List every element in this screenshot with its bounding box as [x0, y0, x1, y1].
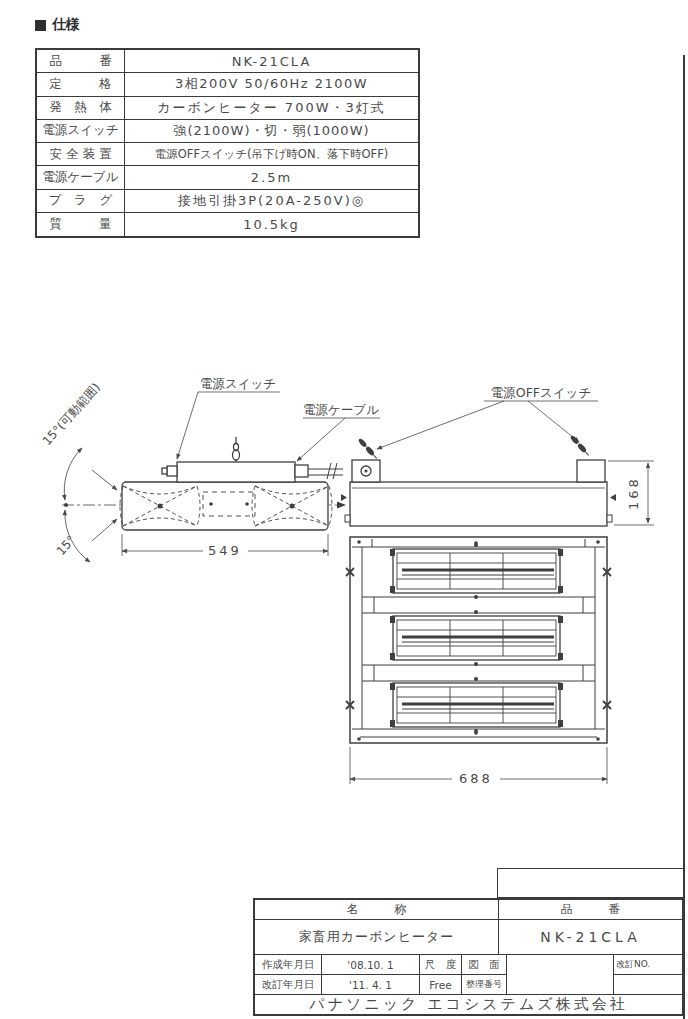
dimension-688: 688 — [350, 747, 607, 786]
dimension-688-text: 688 — [459, 771, 493, 786]
created-date-label: 作成年月日 — [255, 955, 322, 975]
drawing-no-label-top: 図 面 — [462, 955, 507, 975]
product-name: 家畜用カーボンヒーター — [255, 920, 499, 955]
tilt-range-top-label: 15°(可動範囲) — [40, 380, 103, 448]
dimension-168: 168 — [608, 461, 654, 525]
drawing-no-value — [507, 955, 614, 995]
scale-label: 尺 度 — [420, 955, 462, 975]
dimension-549: 549 — [122, 534, 328, 558]
created-date-value: '08.10. 1 — [322, 955, 420, 975]
company-name: パナソニック エコシステムズ株式会社 — [255, 995, 682, 1014]
off-switch-hook-left — [357, 437, 378, 460]
power-off-switch-callout: 電源OFFスイッチ — [377, 385, 598, 449]
hook-block-right — [577, 460, 605, 482]
front-view — [341, 434, 616, 526]
drawing-no-label-bottom: 整理番号 — [462, 975, 507, 995]
title-block: 名 称 品 番 家畜用カーボンヒーター NK-21CLA 作成年月日 '08.1… — [253, 898, 684, 1016]
revision-no-value — [614, 975, 682, 995]
hanger-hook-icon — [233, 437, 240, 462]
power-cable-callout: 電源ケーブル — [297, 402, 380, 461]
dimension-549-text: 549 — [208, 543, 242, 558]
control-box — [177, 462, 295, 482]
part-number-value: NK-21CLA — [499, 920, 682, 955]
name-header: 名 称 — [255, 900, 499, 920]
lamp-assembly — [390, 677, 563, 733]
off-switch-hook-right — [569, 434, 590, 457]
tilt-range-bottom-label: 15° — [54, 533, 79, 558]
heater-body-side — [122, 482, 328, 530]
revised-date-value: '11. 4. 1 — [322, 975, 420, 995]
scale-value: Free — [420, 975, 462, 995]
title-block-empty-box — [497, 868, 684, 898]
lamp-assemblies — [390, 543, 563, 733]
revision-no-label: 改訂NO. — [614, 955, 682, 975]
power-switch-label: 電源スイッチ — [200, 376, 276, 391]
lamp-assembly — [390, 543, 563, 599]
dimension-168-text: 168 — [626, 476, 641, 510]
power-off-switch-label: 電源OFFスイッチ — [491, 385, 591, 400]
lamp-assembly — [390, 610, 563, 666]
power-cable-label: 電源ケーブル — [303, 402, 379, 417]
part-number-header: 品 番 — [499, 900, 682, 920]
center-line-arrow — [337, 502, 346, 509]
power-switch-callout: 電源スイッチ — [177, 376, 280, 459]
technical-drawing: 549 15°(可動範囲) 15° 電源スイッチ 電源ケーブル 電源OFFスイッ… — [0, 0, 688, 1019]
revised-date-label: 改訂年月日 — [255, 975, 322, 995]
power-cable-shape — [295, 463, 343, 479]
power-switch-knob — [162, 466, 177, 476]
heater-body-front — [350, 482, 607, 526]
